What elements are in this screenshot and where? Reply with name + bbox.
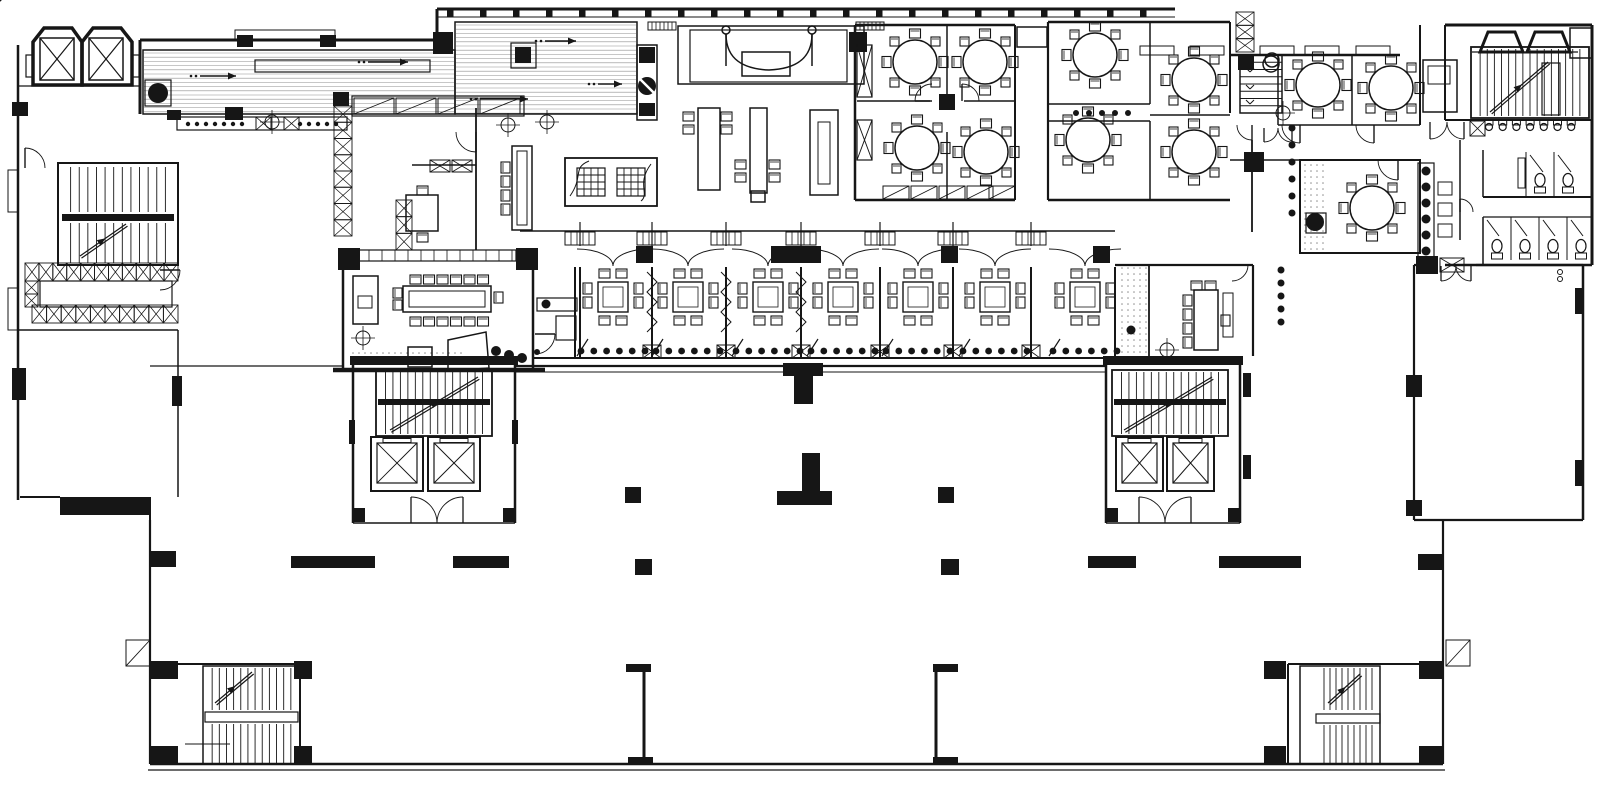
rect	[980, 86, 991, 95]
rect	[829, 269, 840, 278]
x-box	[76, 305, 91, 323]
black-rect	[1074, 11, 1081, 18]
curtain-arc	[959, 249, 995, 266]
circle	[1310, 188, 1312, 190]
chair	[616, 269, 627, 278]
floor-plan-svg	[0, 0, 1600, 797]
black-rect	[810, 11, 817, 18]
shaft-x	[430, 160, 450, 172]
rect	[1548, 253, 1559, 259]
stair-treads	[212, 668, 291, 710]
circle	[1304, 170, 1306, 172]
rect	[908, 287, 928, 307]
x-box	[1122, 443, 1157, 483]
outline	[556, 316, 576, 340]
elevator	[428, 437, 480, 491]
chair	[478, 275, 489, 284]
chair	[1218, 75, 1227, 86]
circle	[820, 348, 827, 355]
chair	[709, 297, 718, 308]
circle	[1133, 279, 1135, 281]
round-table-8	[882, 29, 948, 95]
chair	[864, 283, 873, 294]
rect	[933, 123, 942, 132]
circle	[1145, 303, 1147, 305]
t-column	[783, 363, 823, 376]
chair	[464, 275, 475, 284]
circle	[1304, 200, 1306, 202]
chair	[721, 125, 732, 134]
door-arc	[1165, 497, 1191, 523]
circle	[1172, 130, 1216, 174]
circle	[1145, 279, 1147, 281]
circle	[540, 40, 543, 43]
direction-arrow	[588, 81, 622, 88]
rect	[1366, 63, 1375, 72]
black-rect	[777, 11, 784, 18]
chair	[754, 269, 765, 278]
circle	[1310, 242, 1312, 244]
outline	[1316, 714, 1380, 723]
rect	[758, 287, 778, 307]
rect	[1210, 55, 1219, 64]
filled-circle	[1306, 213, 1324, 231]
chair	[892, 164, 901, 173]
rect	[464, 317, 475, 326]
chair	[410, 275, 421, 284]
circle	[1127, 291, 1129, 293]
circle	[1278, 319, 1285, 326]
rect	[921, 316, 932, 325]
circle	[376, 352, 378, 354]
private-dining-room	[1049, 249, 1121, 356]
chair	[1002, 127, 1011, 136]
circle	[1316, 248, 1318, 250]
circle	[412, 352, 414, 354]
door-arc	[437, 497, 463, 523]
rect	[1563, 187, 1574, 193]
rect	[985, 287, 1005, 307]
circle	[1310, 194, 1312, 196]
filled-circle	[517, 353, 527, 363]
chair	[1111, 71, 1120, 80]
rect	[846, 316, 857, 325]
chair	[501, 162, 510, 173]
circle	[1310, 248, 1312, 250]
chair	[941, 143, 950, 154]
rect	[1161, 147, 1170, 158]
circle	[1121, 345, 1123, 347]
circle	[1145, 267, 1147, 269]
banquet-long-table	[403, 286, 491, 312]
circle	[1133, 291, 1135, 293]
circle	[1121, 309, 1123, 311]
core-west-wall	[350, 356, 518, 365]
core-east-wall	[1103, 356, 1243, 365]
rect	[884, 143, 893, 154]
circle	[1145, 291, 1147, 293]
x-box	[396, 233, 412, 250]
column	[503, 508, 515, 522]
circle	[1289, 176, 1296, 183]
rect	[965, 297, 974, 308]
chair	[939, 283, 948, 294]
chair	[393, 300, 402, 310]
rect	[599, 316, 610, 325]
outline	[1518, 158, 1525, 188]
circle	[1133, 315, 1135, 317]
toilet	[1576, 240, 1587, 260]
column	[639, 47, 655, 63]
curtain-arc	[688, 249, 724, 266]
rect	[1386, 112, 1397, 121]
circle	[1322, 200, 1324, 202]
chair	[981, 119, 992, 128]
chair	[864, 297, 873, 308]
shaft-x	[284, 117, 299, 130]
line	[1330, 676, 1362, 705]
chair	[1366, 63, 1375, 72]
circle	[1133, 309, 1135, 311]
circle	[1289, 210, 1296, 217]
circle	[934, 348, 941, 355]
chair	[1112, 135, 1121, 146]
column	[172, 376, 182, 406]
circle	[352, 352, 354, 354]
door	[1237, 125, 1252, 140]
stair-rail	[1328, 674, 1362, 705]
circle	[442, 352, 444, 354]
chair	[1161, 147, 1170, 158]
column	[12, 368, 26, 400]
circle	[1304, 164, 1306, 166]
chair	[1334, 60, 1343, 69]
rect	[1358, 83, 1367, 94]
rect	[1090, 79, 1101, 88]
rect	[828, 282, 858, 312]
column	[225, 107, 243, 120]
rect	[1535, 187, 1546, 193]
vip-table	[1194, 290, 1218, 350]
circle	[859, 348, 866, 355]
rect	[393, 288, 402, 298]
rect	[903, 282, 933, 312]
rect	[998, 316, 1009, 325]
circle	[921, 348, 928, 355]
rect	[1183, 337, 1192, 348]
x-box	[25, 263, 39, 281]
circle	[1310, 200, 1312, 202]
toilet	[1535, 174, 1546, 194]
rect	[1388, 224, 1397, 233]
rect	[904, 316, 915, 325]
chair-row	[1183, 295, 1192, 348]
rect	[1293, 101, 1302, 110]
column	[625, 487, 641, 503]
column	[150, 746, 178, 764]
circle	[1316, 194, 1318, 196]
column	[237, 35, 253, 47]
chair-row	[410, 317, 489, 326]
circle	[895, 126, 939, 170]
rect	[1104, 115, 1113, 124]
circle	[325, 122, 329, 126]
rect	[1407, 104, 1416, 113]
door	[25, 148, 45, 168]
circle	[1322, 242, 1324, 244]
rect	[1347, 183, 1356, 192]
t-column	[802, 453, 820, 493]
x-box	[434, 443, 474, 483]
toilet	[1563, 174, 1574, 194]
toilet	[1492, 240, 1503, 260]
floor-feature	[515, 47, 531, 63]
column	[639, 103, 655, 116]
chair	[931, 37, 940, 46]
chair	[683, 112, 694, 121]
rect	[1492, 253, 1503, 259]
lattice-grid	[577, 168, 605, 196]
chair	[1347, 183, 1356, 192]
circle	[231, 122, 235, 126]
circle	[985, 348, 992, 355]
circle	[1127, 279, 1129, 281]
rect	[1083, 164, 1094, 173]
black-rect	[711, 11, 718, 18]
rect	[864, 297, 873, 308]
rect	[941, 143, 950, 154]
rect	[1388, 183, 1397, 192]
circle	[1133, 303, 1135, 305]
chair	[634, 283, 643, 294]
chair	[437, 317, 448, 326]
rect	[478, 275, 489, 284]
rect	[451, 275, 462, 284]
column	[167, 110, 181, 120]
circle	[1369, 66, 1413, 110]
rect	[980, 29, 991, 38]
chair	[981, 316, 992, 325]
chair	[882, 57, 891, 68]
planter-trough	[810, 110, 838, 195]
x-box	[1236, 12, 1254, 25]
sideboard	[353, 276, 378, 324]
chair	[410, 317, 421, 326]
chair	[1313, 109, 1324, 118]
circle	[186, 122, 190, 126]
rect	[437, 275, 448, 284]
black-rect	[876, 11, 883, 18]
circle	[1139, 333, 1141, 335]
column	[1243, 373, 1251, 397]
chair	[888, 283, 897, 294]
chair	[1210, 127, 1219, 136]
circle	[1322, 170, 1324, 172]
x-box	[163, 305, 178, 323]
roof-arch	[1527, 32, 1570, 52]
outline	[8, 288, 18, 330]
circle	[195, 75, 198, 78]
chair	[1189, 176, 1200, 185]
rect	[1221, 315, 1230, 326]
black-rect	[678, 11, 685, 18]
black-rect	[1008, 11, 1015, 18]
rect	[424, 275, 435, 284]
circle	[1088, 348, 1095, 355]
rect	[1001, 37, 1010, 46]
outline	[517, 151, 527, 225]
chevron	[1246, 85, 1254, 89]
rect	[754, 269, 765, 278]
chair	[846, 269, 857, 278]
chair	[451, 317, 462, 326]
column	[1418, 554, 1444, 570]
rect	[501, 204, 510, 215]
plant	[148, 83, 168, 103]
circle	[364, 352, 366, 354]
line	[911, 186, 937, 199]
chair	[721, 112, 732, 121]
rect	[440, 439, 468, 443]
black-rect	[612, 11, 619, 18]
stair-treads	[1480, 49, 1580, 116]
circle	[1127, 309, 1129, 311]
chair	[1169, 168, 1178, 177]
rect	[753, 282, 783, 312]
duct-shaft	[857, 120, 872, 160]
door-arc	[1378, 160, 1398, 180]
sink	[1422, 183, 1431, 192]
circle	[665, 348, 672, 355]
circle	[1289, 142, 1296, 149]
tick-panel	[648, 22, 676, 30]
circle	[1304, 188, 1306, 190]
chair	[965, 283, 974, 294]
rect	[501, 162, 510, 173]
chair	[769, 173, 780, 182]
column	[150, 551, 176, 567]
circle	[784, 348, 791, 355]
circle	[1316, 164, 1318, 166]
stair-treads	[1324, 725, 1372, 764]
chair	[1189, 119, 1200, 128]
chair	[1313, 52, 1324, 61]
rect	[709, 297, 718, 308]
rect	[691, 316, 702, 325]
column	[353, 508, 365, 522]
sink	[1422, 247, 1431, 256]
rect	[1293, 60, 1302, 69]
chair	[1407, 104, 1416, 113]
rect	[683, 125, 694, 134]
rect	[1055, 135, 1064, 146]
circle	[358, 352, 360, 354]
black-rect	[579, 11, 586, 18]
rect	[721, 112, 732, 121]
circle	[222, 122, 226, 126]
private-dining-room	[807, 249, 879, 356]
circle	[588, 83, 591, 86]
x-box	[1236, 39, 1254, 52]
chair	[1334, 101, 1343, 110]
column	[941, 559, 959, 575]
circle	[1139, 267, 1141, 269]
chair	[424, 275, 435, 284]
column	[1244, 152, 1264, 172]
circle	[1121, 267, 1123, 269]
observation-lift-car	[40, 38, 74, 80]
rect	[658, 283, 667, 294]
rect	[721, 125, 732, 134]
chair	[417, 233, 428, 242]
circle	[1011, 348, 1018, 355]
circle	[1145, 345, 1147, 347]
circle	[1278, 267, 1285, 274]
column	[1093, 246, 1110, 263]
black-rect	[447, 11, 454, 18]
chair	[735, 160, 746, 169]
rect	[738, 283, 747, 294]
rect	[864, 283, 873, 294]
curtain-arc	[652, 249, 688, 266]
circle	[1066, 118, 1110, 162]
chair	[904, 269, 915, 278]
circle	[1121, 297, 1123, 299]
circle	[704, 348, 711, 355]
chair	[1090, 22, 1101, 31]
chair	[478, 317, 489, 326]
chair	[892, 123, 901, 132]
circle	[629, 348, 636, 355]
column	[516, 248, 538, 270]
rect	[882, 57, 891, 68]
curtain-arc	[577, 249, 613, 266]
private-dining-room	[732, 249, 804, 356]
x-box	[334, 139, 352, 155]
chair	[1386, 112, 1397, 121]
rect	[674, 269, 685, 278]
circle	[895, 348, 902, 355]
circle	[1322, 236, 1324, 238]
chair	[1055, 297, 1064, 308]
chair	[829, 316, 840, 325]
circle-mark	[1558, 277, 1563, 282]
rect	[1161, 75, 1170, 86]
circle	[1289, 125, 1296, 132]
line	[939, 186, 965, 199]
circle	[1127, 315, 1129, 317]
chair	[501, 176, 510, 187]
x-box	[105, 305, 120, 323]
chair	[1358, 83, 1367, 94]
chair	[1396, 203, 1405, 214]
rect	[451, 317, 462, 326]
chair	[1388, 224, 1397, 233]
round-table-8	[1161, 119, 1227, 185]
circle	[1310, 182, 1312, 184]
rect	[892, 164, 901, 173]
circle	[436, 352, 438, 354]
rect	[603, 287, 623, 307]
beam	[291, 556, 375, 568]
elevator	[1167, 437, 1214, 491]
round-table-8	[953, 119, 1019, 185]
outline	[1017, 27, 1047, 47]
wood-floor-gallery-north	[456, 25, 636, 113]
rect	[1183, 323, 1192, 334]
chair	[451, 275, 462, 284]
circle	[1073, 110, 1079, 116]
